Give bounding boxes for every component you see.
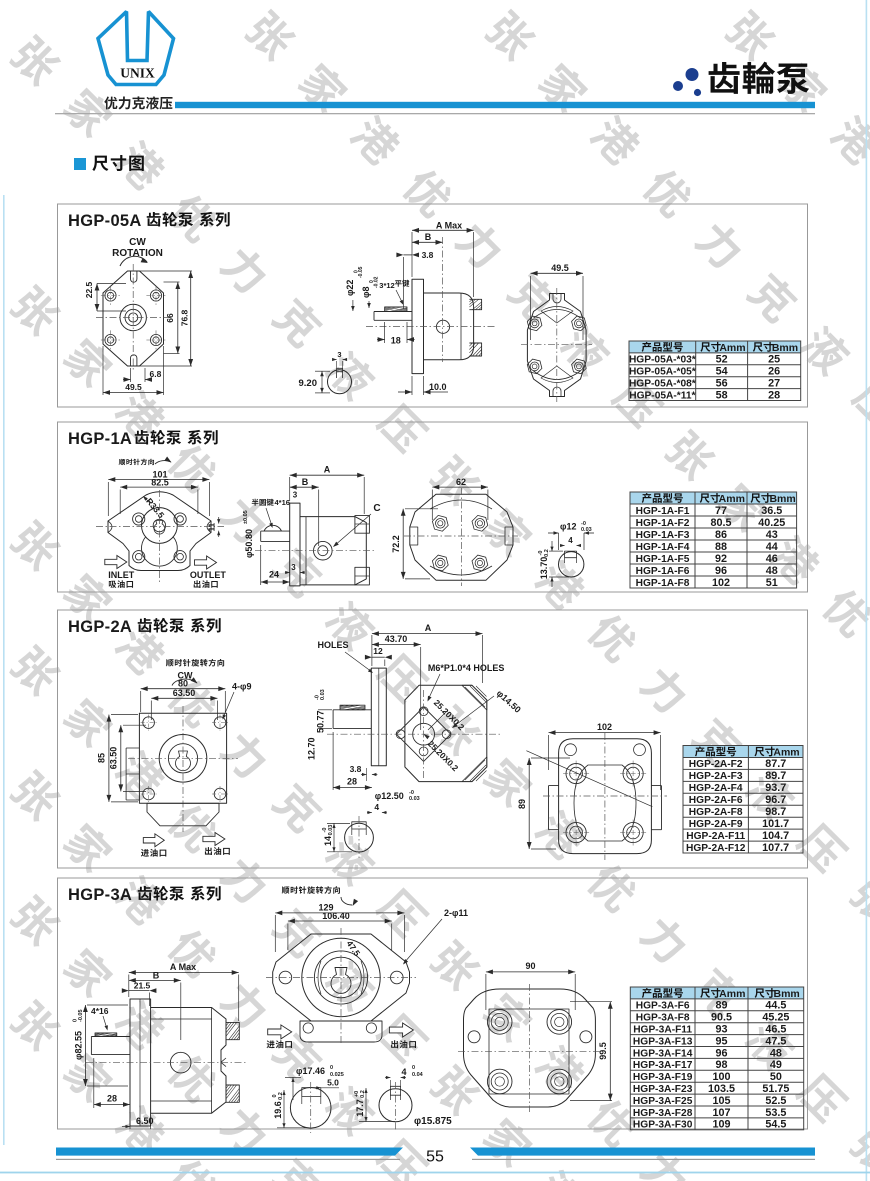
svg-text:21.5: 21.5 xyxy=(134,981,151,991)
svg-text:4-φ9: 4-φ9 xyxy=(232,682,251,692)
svg-text:φ17.46: φ17.46 xyxy=(296,1066,325,1076)
svg-text:B: B xyxy=(302,477,309,487)
svg-text:14: 14 xyxy=(323,836,333,846)
svg-text:66: 66 xyxy=(165,313,175,323)
svg-text:87.7: 87.7 xyxy=(765,758,786,770)
svg-text:9.20: 9.20 xyxy=(299,378,318,389)
svg-text:HGP-1A-F6: HGP-1A-F6 xyxy=(636,566,690,577)
svg-text:4: 4 xyxy=(568,536,573,545)
svg-text:44: 44 xyxy=(766,541,778,553)
svg-text:90.5: 90.5 xyxy=(711,1012,732,1024)
svg-text:76.8: 76.8 xyxy=(180,309,190,326)
svg-text:96: 96 xyxy=(715,565,727,577)
svg-text:HGP-2A-F6: HGP-2A-F6 xyxy=(689,795,743,806)
svg-text:89.7: 89.7 xyxy=(765,770,786,782)
svg-text:HGP-1A-F5: HGP-1A-F5 xyxy=(636,554,690,565)
svg-text:96.7: 96.7 xyxy=(765,794,786,806)
svg-text:B: B xyxy=(425,232,432,242)
svg-text:HGP-3A-F28: HGP-3A-F28 xyxy=(633,1108,693,1119)
svg-text:A Max: A Max xyxy=(170,962,196,972)
svg-text:96: 96 xyxy=(715,1047,727,1059)
svg-text:A: A xyxy=(324,465,331,475)
svg-text:CW: CW xyxy=(129,237,146,248)
svg-text:HGP-2A-F3: HGP-2A-F3 xyxy=(689,771,743,782)
svg-text:HGP-2A-F11: HGP-2A-F11 xyxy=(686,831,745,842)
svg-text:HGP-1A-F1: HGP-1A-F1 xyxy=(636,506,690,517)
svg-text:19.6: 19.6 xyxy=(273,1101,283,1119)
svg-text:47.5: 47.5 xyxy=(765,1035,786,1047)
svg-text:54.5: 54.5 xyxy=(765,1119,786,1131)
svg-text:φ50.80: φ50.80 xyxy=(244,529,254,558)
svg-text:C: C xyxy=(373,503,380,514)
svg-text:3*12: 3*12 xyxy=(379,281,394,290)
svg-text:4*16: 4*16 xyxy=(91,1006,109,1016)
svg-text:HGP-3A-F30: HGP-3A-F30 xyxy=(633,1120,693,1131)
svg-text:80: 80 xyxy=(178,679,188,689)
svg-text:106.40: 106.40 xyxy=(322,911,350,921)
svg-text:HGP-1A-F4: HGP-1A-F4 xyxy=(636,542,690,553)
svg-text:101.7: 101.7 xyxy=(762,818,789,830)
svg-text:26: 26 xyxy=(768,366,780,378)
svg-text:HGP-1A-F8: HGP-1A-F8 xyxy=(636,578,690,589)
svg-text:HOLES: HOLES xyxy=(317,640,348,650)
svg-text:90: 90 xyxy=(525,961,535,971)
svg-text:0.03: 0.03 xyxy=(581,527,592,533)
svg-text:HGP-3A-F23: HGP-3A-F23 xyxy=(633,1084,693,1095)
svg-text:4*16: 4*16 xyxy=(275,498,290,507)
svg-text:49.5: 49.5 xyxy=(551,263,569,273)
svg-text:92: 92 xyxy=(715,553,727,565)
svg-text:54: 54 xyxy=(716,366,728,378)
svg-text:25: 25 xyxy=(768,354,780,366)
svg-text:12.70: 12.70 xyxy=(306,737,316,760)
svg-text:Bmm: Bmm xyxy=(774,988,800,1000)
svg-text:HGP-1A-F2: HGP-1A-F2 xyxy=(636,518,690,529)
svg-text:89: 89 xyxy=(517,799,527,809)
svg-text:50: 50 xyxy=(770,1071,782,1083)
svg-text:HGP-3A-F6: HGP-3A-F6 xyxy=(636,1001,690,1012)
svg-text:43: 43 xyxy=(766,529,778,541)
svg-text:46.5: 46.5 xyxy=(765,1023,786,1035)
svg-text:HGP-3A-F13: HGP-3A-F13 xyxy=(633,1036,693,1047)
svg-text:B: B xyxy=(153,971,160,981)
svg-text:36.5: 36.5 xyxy=(761,505,782,517)
svg-text:0.04: 0.04 xyxy=(412,1072,424,1078)
svg-text:HGP-3A-F11: HGP-3A-F11 xyxy=(633,1024,692,1035)
svg-text:HGP-1A-F3: HGP-1A-F3 xyxy=(636,530,690,541)
svg-text:72.2: 72.2 xyxy=(391,535,401,553)
svg-text:0.03: 0.03 xyxy=(409,796,420,802)
svg-text:±0.05: ±0.05 xyxy=(243,510,249,524)
svg-text:INLET: INLET xyxy=(108,570,135,580)
svg-text:Amm: Amm xyxy=(719,988,745,1000)
svg-text:0.03: 0.03 xyxy=(320,689,326,700)
svg-text:-0.05: -0.05 xyxy=(78,1009,84,1022)
svg-text:107: 107 xyxy=(712,1107,730,1119)
svg-text:HGP-3A-F14: HGP-3A-F14 xyxy=(633,1048,693,1059)
svg-text:28: 28 xyxy=(347,777,357,787)
svg-text:4: 4 xyxy=(401,1067,406,1077)
svg-text:3: 3 xyxy=(293,491,298,500)
svg-text:0: 0 xyxy=(330,1065,333,1071)
svg-text:φ82.55: φ82.55 xyxy=(74,1031,84,1060)
svg-text:28: 28 xyxy=(768,389,780,401)
svg-text:43.70: 43.70 xyxy=(385,634,408,644)
svg-text:HGP-3A-F25: HGP-3A-F25 xyxy=(633,1096,693,1107)
svg-text:107.7: 107.7 xyxy=(762,842,789,854)
svg-text:3.8: 3.8 xyxy=(422,250,434,260)
svg-text:103.5: 103.5 xyxy=(708,1083,735,1095)
svg-text:56: 56 xyxy=(716,377,728,389)
svg-text:80.5: 80.5 xyxy=(710,517,731,529)
svg-text:Bmm: Bmm xyxy=(769,493,795,505)
svg-text:φ12: φ12 xyxy=(560,522,576,532)
svg-text:HGP-2A: HGP-2A xyxy=(68,618,132,636)
svg-text:HGP-05A-*03*: HGP-05A-*03* xyxy=(629,355,696,366)
svg-text:45.25: 45.25 xyxy=(762,1012,789,1024)
svg-text:62: 62 xyxy=(456,477,466,487)
svg-text:98.7: 98.7 xyxy=(765,806,786,818)
svg-text:φ8: φ8 xyxy=(361,287,371,298)
svg-text:A: A xyxy=(425,623,432,633)
svg-text:3: 3 xyxy=(337,350,341,359)
svg-text:55: 55 xyxy=(426,1149,444,1166)
svg-text:49: 49 xyxy=(770,1059,782,1071)
svg-text:48: 48 xyxy=(766,565,778,577)
svg-text:102: 102 xyxy=(597,722,612,732)
svg-text:HGP-3A: HGP-3A xyxy=(68,886,132,904)
svg-text:10.0: 10.0 xyxy=(429,382,447,392)
svg-text:0: 0 xyxy=(412,1065,415,1071)
svg-text:48: 48 xyxy=(770,1047,782,1059)
svg-text:17.7: 17.7 xyxy=(355,1099,365,1117)
svg-text:φ12.50: φ12.50 xyxy=(375,791,404,801)
svg-text:88: 88 xyxy=(715,541,727,553)
svg-text:85: 85 xyxy=(97,753,107,763)
svg-text:58: 58 xyxy=(716,389,728,401)
svg-text:77: 77 xyxy=(715,505,727,517)
svg-text:HGP-05A: HGP-05A xyxy=(68,212,142,230)
svg-text:52.5: 52.5 xyxy=(765,1095,786,1107)
svg-text:51: 51 xyxy=(766,577,778,589)
svg-text:53.5: 53.5 xyxy=(765,1107,786,1119)
svg-text:82.5: 82.5 xyxy=(151,478,169,488)
svg-text:18: 18 xyxy=(391,336,401,346)
svg-text:13.70: 13.70 xyxy=(539,557,549,580)
svg-text:51.75: 51.75 xyxy=(762,1083,789,1095)
svg-text:φ22: φ22 xyxy=(345,280,355,296)
svg-text:HGP-3A-F8: HGP-3A-F8 xyxy=(636,1013,690,1024)
svg-text:11: 11 xyxy=(208,522,217,531)
svg-text:52: 52 xyxy=(716,354,728,366)
svg-text:93: 93 xyxy=(715,1023,727,1035)
svg-text:ROTATION: ROTATION xyxy=(112,248,163,259)
svg-text:22.5: 22.5 xyxy=(84,281,94,298)
svg-text:99.5: 99.5 xyxy=(598,1042,608,1060)
svg-text:93.7: 93.7 xyxy=(765,782,786,794)
svg-text:24: 24 xyxy=(269,570,279,580)
svg-text:5.0: 5.0 xyxy=(327,1078,339,1088)
svg-text:63.50: 63.50 xyxy=(109,747,119,770)
svg-text:HGP-05A-*11*: HGP-05A-*11* xyxy=(629,390,695,401)
svg-text:-0.05: -0.05 xyxy=(358,266,364,278)
svg-text:HGP-2A-F12: HGP-2A-F12 xyxy=(686,843,746,854)
svg-text:4: 4 xyxy=(374,802,379,812)
svg-text:Amm: Amm xyxy=(719,493,745,505)
svg-text:HGP-2A-F9: HGP-2A-F9 xyxy=(689,819,743,830)
svg-text:105: 105 xyxy=(712,1095,730,1107)
svg-text:HGP-2A-F4: HGP-2A-F4 xyxy=(689,783,743,794)
svg-text:89: 89 xyxy=(715,1000,727,1012)
svg-text:102: 102 xyxy=(712,577,730,589)
svg-text:HGP-05A-*08*: HGP-05A-*08* xyxy=(629,378,696,389)
svg-text:40.25: 40.25 xyxy=(758,517,785,529)
svg-text:A Max: A Max xyxy=(436,221,462,231)
svg-text:HGP-3A-F17: HGP-3A-F17 xyxy=(633,1060,693,1071)
svg-text:95: 95 xyxy=(715,1035,727,1047)
svg-text:2-φ11: 2-φ11 xyxy=(444,908,468,918)
svg-text:50.77: 50.77 xyxy=(316,710,326,733)
svg-text:109: 109 xyxy=(712,1119,730,1131)
svg-text:Bmm: Bmm xyxy=(772,342,798,354)
svg-text:100: 100 xyxy=(712,1071,730,1083)
svg-text:3.8: 3.8 xyxy=(350,764,362,774)
svg-text:86: 86 xyxy=(715,529,727,541)
svg-text:OUTLET: OUTLET xyxy=(190,570,226,580)
svg-text:HGP-3A-F19: HGP-3A-F19 xyxy=(633,1072,693,1083)
svg-text:HGP-1A: HGP-1A xyxy=(68,430,132,448)
svg-text:Amm: Amm xyxy=(719,342,745,354)
svg-text:HGP-2A-F8: HGP-2A-F8 xyxy=(689,807,743,818)
svg-text:44.5: 44.5 xyxy=(765,1000,786,1012)
svg-text:HGP-2A-F2: HGP-2A-F2 xyxy=(689,759,743,770)
svg-text:Amm: Amm xyxy=(773,746,799,758)
svg-text:104.7: 104.7 xyxy=(762,830,789,842)
svg-text:M6*P1.0*4 HOLES: M6*P1.0*4 HOLES xyxy=(428,663,505,673)
svg-text:UNIX: UNIX xyxy=(120,66,155,81)
svg-text:φ15.875: φ15.875 xyxy=(414,1116,452,1127)
svg-text:63.50: 63.50 xyxy=(173,688,196,698)
svg-text:98: 98 xyxy=(715,1059,727,1071)
svg-text:46: 46 xyxy=(766,553,778,565)
svg-text:HGP-05A-*05*: HGP-05A-*05* xyxy=(629,367,696,378)
svg-text:0.2: 0.2 xyxy=(544,549,550,557)
svg-text:12: 12 xyxy=(373,646,383,656)
svg-text:49.5: 49.5 xyxy=(125,382,142,392)
svg-text:3: 3 xyxy=(291,563,296,572)
svg-text:28: 28 xyxy=(107,1094,117,1104)
svg-text:27: 27 xyxy=(768,377,780,389)
